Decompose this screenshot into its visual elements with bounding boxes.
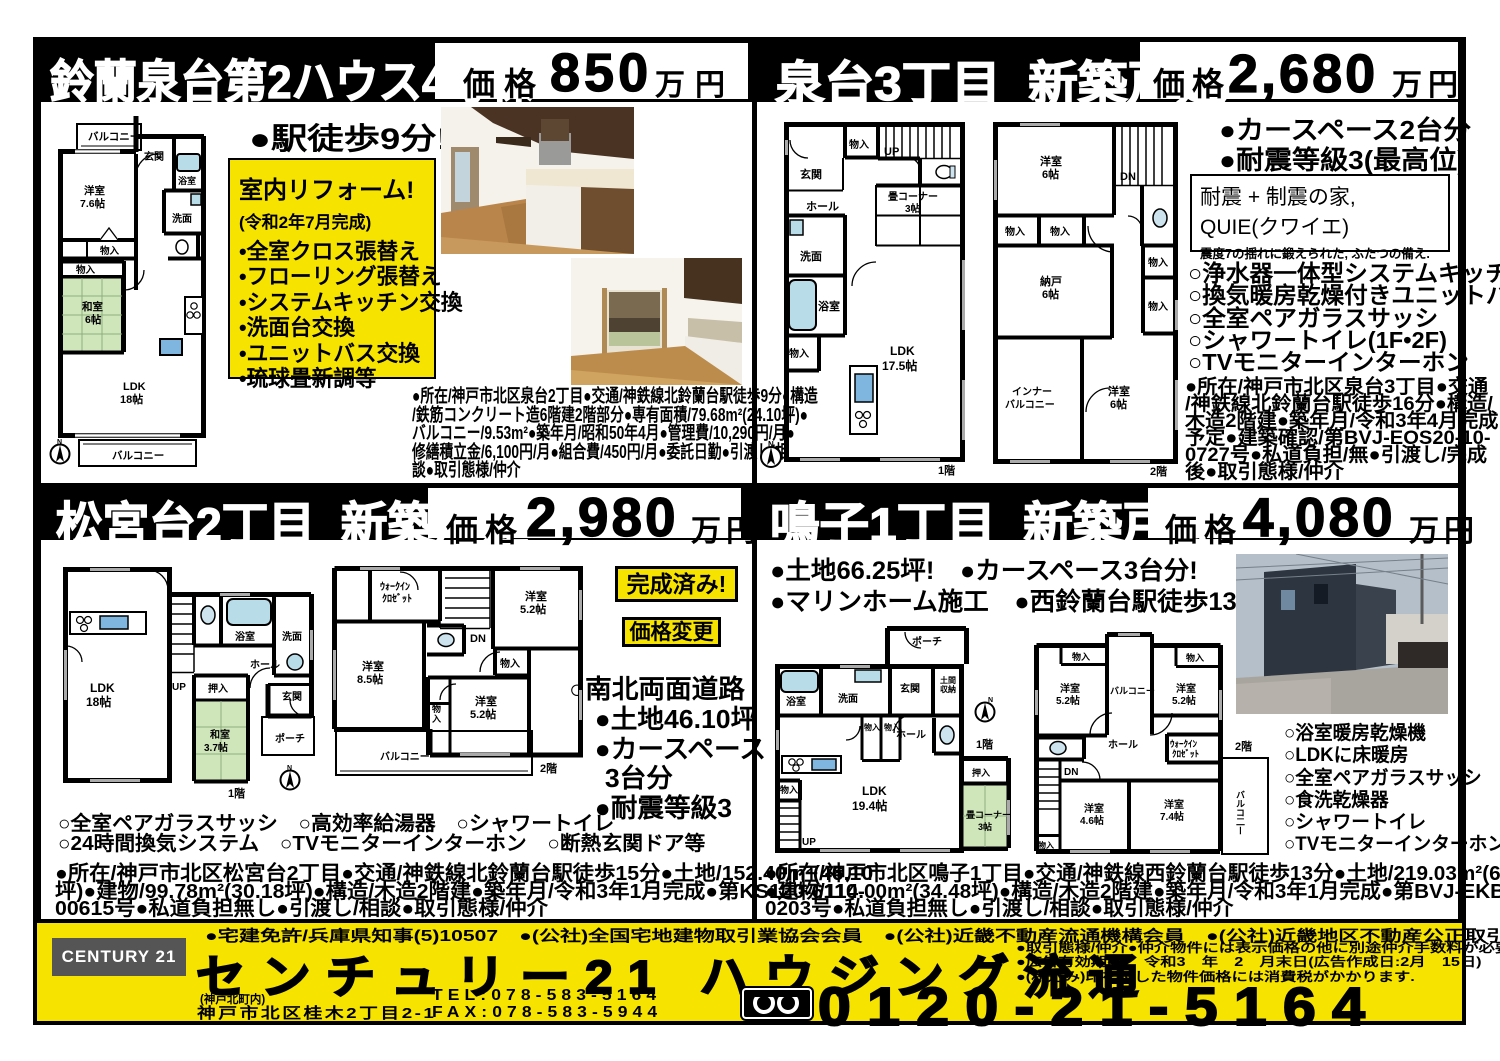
svg-text:6帖: 6帖 <box>1042 287 1059 301</box>
svg-text:UP: UP <box>884 146 899 158</box>
svg-text:物入: 物入 <box>849 138 869 151</box>
svg-text:7.4帖: 7.4帖 <box>1160 810 1184 823</box>
svg-text:和室: 和室 <box>81 300 103 313</box>
svg-text:和室: 和室 <box>209 728 230 741</box>
svg-text:畳コーナー: 畳コーナー <box>888 191 938 203</box>
svg-text:バルコニー: バルコニー <box>88 131 140 143</box>
svg-text:物入: 物入 <box>100 245 120 257</box>
svg-text:17.5帖: 17.5帖 <box>882 358 917 373</box>
svg-text:物入: 物入 <box>76 264 96 276</box>
svg-text:ｳｫｰｸｲﾝ: ｳｫｰｸｲﾝ <box>1170 739 1198 749</box>
svg-text:N: N <box>57 439 62 446</box>
svg-text:物入: 物入 <box>1072 651 1090 662</box>
svg-text:洋室: 洋室 <box>1040 154 1062 168</box>
svg-text:玄関: 玄関 <box>800 167 822 181</box>
svg-text:ホール: ホール <box>250 659 280 671</box>
svg-text:3.7帖: 3.7帖 <box>204 741 228 754</box>
svg-text:UP: UP <box>172 682 186 693</box>
svg-text:収納: 収納 <box>940 684 956 694</box>
svg-text:ホール: ホール <box>806 200 839 213</box>
svg-text:ポーチ: ポーチ <box>275 732 305 745</box>
svg-text:ｳｫｰｸｲﾝ: ｳｫｰｸｲﾝ <box>380 581 410 593</box>
svg-text:洋室: 洋室 <box>362 659 384 673</box>
svg-text:ｸﾛｾﾞｯﾄ: ｸﾛｾﾞｯﾄ <box>382 592 412 605</box>
svg-text:洋室: 洋室 <box>525 589 547 603</box>
svg-text:19.4帖: 19.4帖 <box>852 798 887 813</box>
svg-text:N: N <box>988 697 993 704</box>
svg-text:ホール: ホール <box>896 729 926 741</box>
svg-text:物入: 物入 <box>1038 840 1054 850</box>
svg-text:玄関: 玄関 <box>900 682 920 695</box>
svg-text:洗面: 洗面 <box>282 630 302 643</box>
svg-text:物: 物 <box>432 703 441 714</box>
svg-text:浴室: 浴室 <box>235 630 255 643</box>
svg-text:6帖: 6帖 <box>85 313 102 326</box>
svg-text:DN: DN <box>1120 171 1136 183</box>
svg-text:玄関: 玄関 <box>282 690 302 703</box>
svg-text:物入: 物入 <box>789 347 809 360</box>
svg-text:物入: 物入 <box>780 784 798 795</box>
svg-text:洗面: 洗面 <box>838 692 858 705</box>
svg-text:N: N <box>768 440 774 449</box>
svg-text:3帖: 3帖 <box>905 202 921 215</box>
svg-text:洋室: 洋室 <box>1108 384 1130 398</box>
svg-text:2階: 2階 <box>540 761 557 775</box>
svg-text:6帖: 6帖 <box>1042 167 1059 181</box>
svg-text:物入: 物入 <box>1050 225 1070 238</box>
svg-text:浴室: 浴室 <box>786 695 806 708</box>
svg-text:物入: 物入 <box>1148 256 1168 269</box>
svg-text:LDK: LDK <box>862 784 887 798</box>
svg-text:5.2帖: 5.2帖 <box>470 707 496 721</box>
svg-text:8.5帖: 8.5帖 <box>357 672 383 686</box>
svg-text:LDK: LDK <box>123 381 146 393</box>
svg-text:浴室: 浴室 <box>178 175 196 186</box>
svg-text:物入: 物入 <box>1186 652 1204 663</box>
svg-text:物入: 物入 <box>500 657 520 670</box>
svg-text:バルコ二ー: バルコ二ー <box>1235 790 1245 835</box>
svg-text:物入: 物入 <box>864 722 880 732</box>
svg-text:入: 入 <box>431 714 441 724</box>
svg-text:インナー: インナー <box>1012 386 1052 398</box>
svg-text:18帖: 18帖 <box>86 694 111 709</box>
svg-text:浴室: 浴室 <box>818 299 840 313</box>
svg-text:バルコニー: バルコニー <box>1110 686 1155 696</box>
svg-text:バルコニー: バルコニー <box>112 450 164 462</box>
svg-text:洋室: 洋室 <box>84 184 105 197</box>
svg-text:洋室: 洋室 <box>475 694 497 708</box>
svg-text:4.6帖: 4.6帖 <box>1080 814 1104 827</box>
svg-text:ホール: ホール <box>1108 739 1138 751</box>
svg-text:DN: DN <box>470 633 486 645</box>
svg-text:N: N <box>287 765 292 772</box>
svg-text:LDK: LDK <box>890 344 915 358</box>
svg-text:洋室: 洋室 <box>1084 802 1104 815</box>
svg-text:ポーチ: ポーチ <box>912 635 942 648</box>
svg-text:UP: UP <box>802 837 816 848</box>
svg-text:物入: 物入 <box>1005 225 1025 238</box>
svg-text:洗面: 洗面 <box>172 212 192 225</box>
svg-text:押入: 押入 <box>972 767 990 778</box>
svg-text:洋室: 洋室 <box>1176 682 1196 695</box>
svg-text:7.6帖: 7.6帖 <box>80 197 106 210</box>
svg-text:1階: 1階 <box>976 737 993 751</box>
svg-text:バルコニー: バルコニー <box>380 751 430 763</box>
svg-text:洋室: 洋室 <box>1164 798 1184 811</box>
svg-text:1階: 1階 <box>228 786 245 800</box>
svg-text:5.2帖: 5.2帖 <box>520 602 546 616</box>
svg-text:洋室: 洋室 <box>1060 682 1080 695</box>
svg-text:洗面: 洗面 <box>800 249 822 263</box>
svg-text:物入: 物入 <box>1148 300 1168 313</box>
svg-text:土間: 土間 <box>940 675 956 685</box>
svg-text:DN: DN <box>1064 767 1078 778</box>
svg-text:ｸﾛｾﾞｯﾄ: ｸﾛｾﾞｯﾄ <box>1172 748 1200 759</box>
svg-text:6帖: 6帖 <box>1110 397 1127 411</box>
svg-text:5.2帖: 5.2帖 <box>1172 694 1196 707</box>
svg-text:18帖: 18帖 <box>120 392 143 406</box>
svg-text:5.2帖: 5.2帖 <box>1056 694 1080 707</box>
svg-text:押入: 押入 <box>208 682 228 695</box>
svg-text:LDK: LDK <box>90 681 115 695</box>
svg-text:2階: 2階 <box>1235 739 1252 753</box>
svg-text:納戸: 納戸 <box>1040 274 1062 288</box>
svg-text:3帖: 3帖 <box>978 821 992 832</box>
svg-text:物入: 物入 <box>884 722 900 732</box>
svg-text:2階: 2階 <box>1150 464 1167 478</box>
svg-text:バルコニー: バルコニー <box>1005 399 1055 411</box>
svg-text:畳コーナー: 畳コーナー <box>966 810 1011 820</box>
svg-text:1階: 1階 <box>938 463 955 477</box>
